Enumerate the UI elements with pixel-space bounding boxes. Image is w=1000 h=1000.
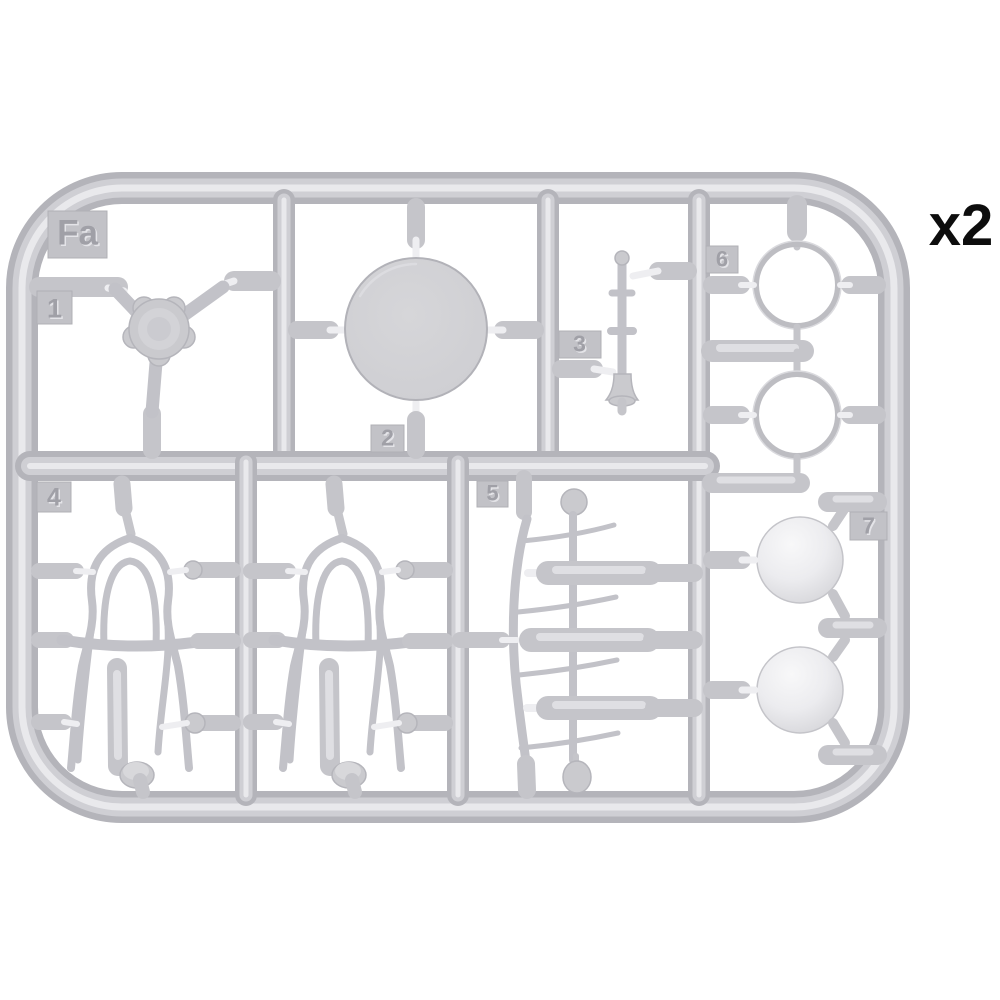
part-number-6: 6 bbox=[716, 247, 728, 272]
sprue-tag-text: Fa bbox=[57, 214, 98, 253]
part-number-3: 3 bbox=[573, 331, 586, 357]
quantity-label: x2 bbox=[929, 193, 994, 258]
part-label-tab-5: 5 5 bbox=[477, 481, 508, 508]
sprue-photo-canvas: Fa Fa 1 1 2 2 3 3 4 4 5 5 6 6 7 7 x2 bbox=[0, 0, 1000, 1000]
sprue-tag-Fa: Fa Fa bbox=[48, 211, 107, 258]
part-1-table-base bbox=[39, 281, 271, 450]
part-label-tab-6: 6 6 bbox=[706, 246, 738, 273]
part-label-tab-7: 7 7 bbox=[850, 512, 887, 540]
part-label-tab-1: 1 1 bbox=[37, 291, 72, 325]
part-number-7: 7 bbox=[862, 513, 875, 539]
part-4-chair-frame-right bbox=[251, 484, 445, 792]
part-4-chair-frame-left bbox=[39, 484, 233, 792]
part-number-2: 2 bbox=[381, 425, 394, 451]
part-2-table-top bbox=[297, 207, 535, 450]
sprue-illustration: Fa Fa 1 1 2 2 3 3 4 4 5 5 6 6 7 7 x2 bbox=[0, 0, 1000, 1000]
part-number-1: 1 bbox=[47, 294, 62, 324]
part-5-curved-legs-rails bbox=[460, 478, 694, 793]
part-label-tab-2: 2 2 bbox=[371, 425, 404, 453]
part-number-5: 5 bbox=[486, 481, 498, 506]
part-number-4: 4 bbox=[47, 484, 61, 512]
part-label-tab-4: 4 4 bbox=[37, 482, 71, 513]
part-label-tab-3: 3 3 bbox=[559, 331, 601, 359]
